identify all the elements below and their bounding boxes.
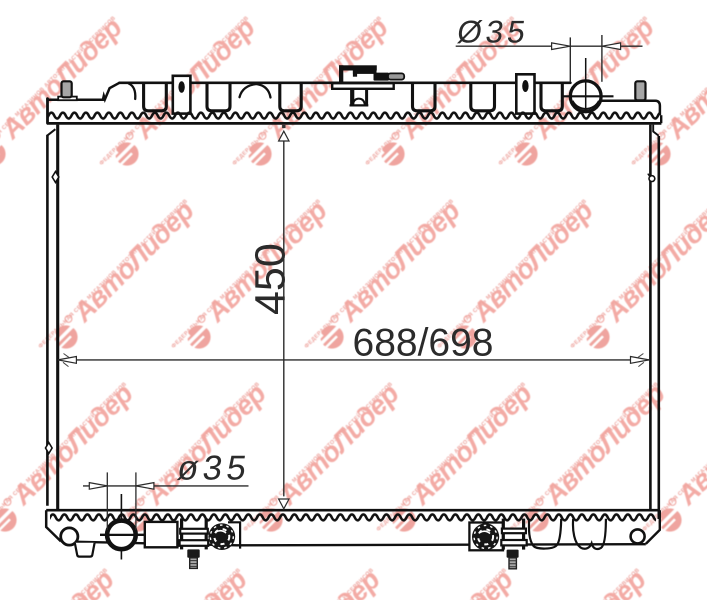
svg-text:450: 450 — [247, 243, 295, 315]
svg-text:688/698: 688/698 — [353, 322, 494, 365]
svg-text:ø35: ø35 — [175, 450, 253, 488]
svg-text:Ø35: Ø35 — [455, 14, 532, 50]
